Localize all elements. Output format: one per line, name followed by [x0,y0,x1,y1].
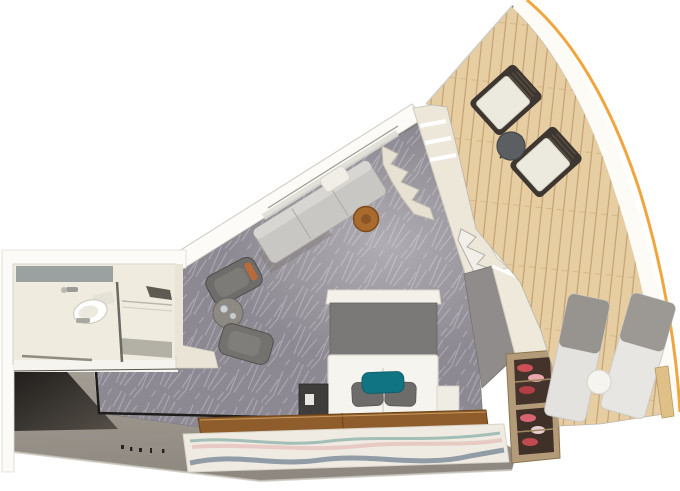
headboard [330,303,437,357]
cup [220,305,228,313]
cup-2 [230,313,237,320]
bistro-table [497,132,525,160]
bathroom-right-wall [175,264,183,356]
headboard-top-shelf [326,290,441,304]
nightstand-label [305,394,314,405]
pillow-teal [362,371,405,393]
floor-finishes [183,410,509,472]
coffee-table [213,298,243,328]
lounger-side-table [587,370,611,394]
vanity-counter [16,266,113,282]
cabin-floorplan [0,0,680,491]
drum-side-table [354,207,379,232]
floorplan-svg [0,0,680,491]
